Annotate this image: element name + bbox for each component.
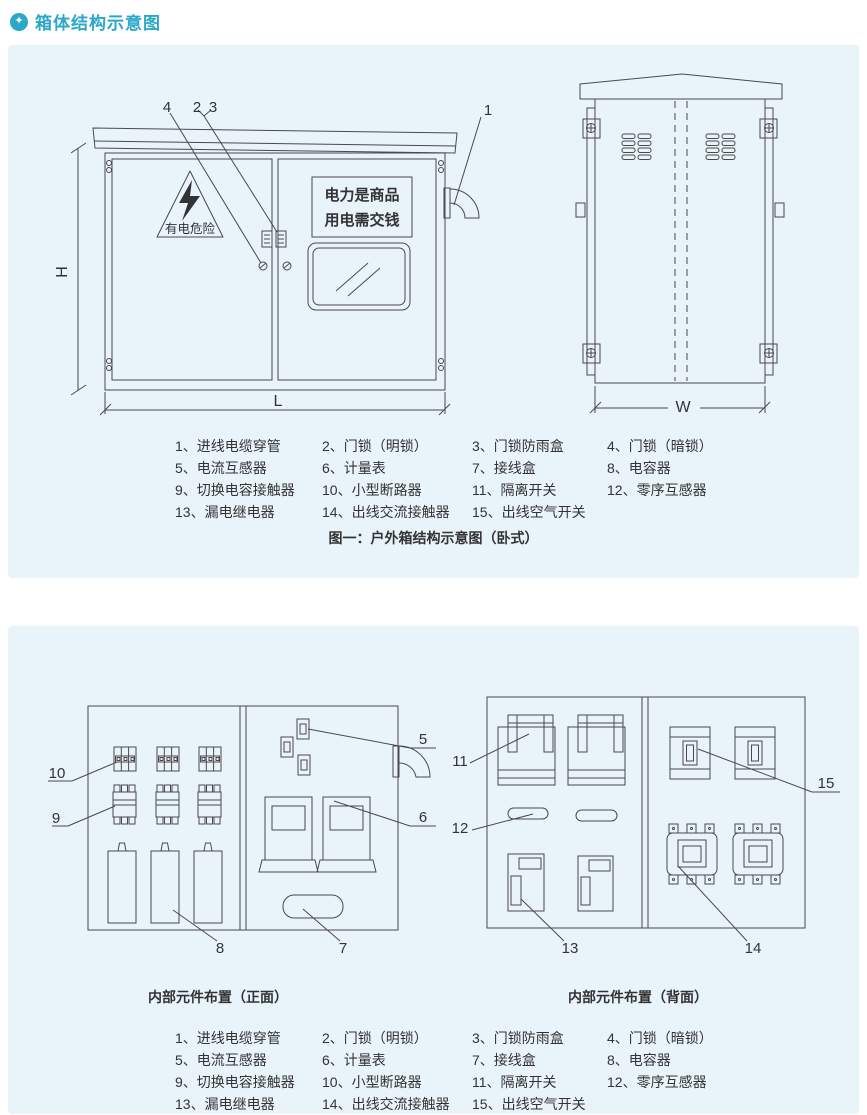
cable-entry-spout-internal [393, 746, 430, 777]
cabinet-roof [93, 128, 457, 153]
legend-item: 14、出线交流接触器 [322, 502, 472, 522]
legend-item: 6、计量表 [322, 1050, 472, 1070]
meter-window [308, 243, 410, 310]
legend-item: 8、电容器 [607, 1050, 713, 1070]
capacitors [108, 843, 222, 923]
legend-item: 4、门锁（暗锁） [607, 436, 713, 456]
miniature-circuit-breakers [114, 747, 221, 771]
callout-4-label: 4 [163, 99, 171, 116]
side-rails [587, 108, 773, 375]
callout-2-label: 2 [193, 99, 201, 116]
outgoing-air-switches [670, 727, 775, 779]
outgoing-ac-contactors [667, 824, 783, 884]
cabinet-back-body [595, 99, 765, 383]
legend-item: 9、切换电容接触器 [175, 1072, 322, 1092]
dimension-w-label: W [675, 399, 691, 416]
vent-louvers-right [706, 134, 735, 160]
figure1-caption: 图一：户外箱结构示意图（卧式） [8, 528, 859, 548]
legend-item: 14、出线交流接触器 [322, 1094, 472, 1114]
zero-sequence-slots [508, 808, 617, 821]
warning-text: 有电危险 [165, 221, 216, 236]
figure1-panel: 4 2 3 1 H L 有电危险 电力是商品 用电需交钱 [8, 45, 859, 578]
internal-front-leader-lines [48, 729, 436, 941]
legend-item: 6、计量表 [322, 458, 472, 478]
legend-item: 10、小型断路器 [322, 1072, 472, 1092]
callout-12-label: 12 [452, 820, 469, 837]
door-lock-assembly [259, 231, 291, 270]
legend-item: 3、门锁防雨盒 [472, 436, 607, 456]
legend-item: 13、漏电继电器 [175, 1094, 322, 1114]
legend-item: 7、接线盒 [472, 458, 607, 478]
dimension-l-label: L [274, 393, 283, 410]
page-title-text: 箱体结构示意图 [35, 9, 161, 34]
internal-back-caption: 内部元件布置（背面） [488, 987, 788, 1007]
back-view-drawing: W [565, 65, 800, 420]
current-transformers [281, 719, 310, 775]
callout-5-label: 5 [419, 731, 427, 748]
internal-back-box [487, 697, 805, 928]
legend-item: 11、隔离开关 [472, 480, 607, 500]
corner-bolt-brackets [583, 119, 777, 363]
page-title: ✦ 箱体结构示意图 [10, 9, 161, 34]
callout-8-label: 8 [216, 940, 224, 957]
legend-item: 12、零序互感器 [607, 480, 713, 500]
legend-item: 3、门锁防雨盒 [472, 1028, 607, 1048]
legend-item: 11、隔离开关 [472, 1072, 607, 1092]
callout-13-label: 13 [562, 940, 579, 957]
side-latches [576, 203, 784, 217]
energy-meters [259, 797, 376, 872]
sign-line1: 电力是商品 [324, 186, 399, 204]
front-view-drawing: 4 2 3 1 H L 有电危险 电力是商品 用电需交钱 [55, 85, 500, 425]
legend-item: 8、电容器 [607, 458, 713, 478]
callout-6-label: 6 [419, 809, 427, 826]
cable-entry-spout [444, 188, 479, 218]
legend-item: 9、切换电容接触器 [175, 480, 322, 500]
peaked-roof [580, 74, 782, 99]
callout-15-label: 15 [818, 775, 835, 792]
legend-item: 12、零序互感器 [607, 1072, 713, 1092]
legend-item: 15、出线空气开关 [472, 502, 607, 522]
legend-item: 2、门锁（明锁） [322, 1028, 472, 1048]
dimension-h-label: H [54, 266, 71, 278]
callout-14-label: 14 [745, 940, 762, 957]
callout-10-label: 10 [49, 765, 66, 782]
legend-bottom: 1、进线电缆穿管 2、门锁（明锁） 3、门锁防雨盒 4、门锁（暗锁） 5、电流互… [175, 1027, 713, 1115]
legend-item: 1、进线电缆穿管 [175, 436, 322, 456]
internal-back-leader-lines [470, 734, 840, 941]
callout-9-label: 9 [52, 810, 60, 827]
internal-front-drawing: 10 9 8 7 5 6 [45, 690, 445, 960]
callout-11-label: 11 [452, 753, 468, 770]
isolating-switches [498, 715, 625, 785]
legend-item: 2、门锁（明锁） [322, 436, 472, 456]
sign-line2: 用电需交钱 [324, 211, 399, 229]
legend-item: 5、电流互感器 [175, 458, 322, 478]
brilliance-star-icon: ✦ [10, 13, 28, 31]
internal-back-drawing: 11 12 13 14 15 [450, 690, 860, 960]
internal-front-caption: 内部元件布置（正面） [68, 987, 368, 1007]
legend-item: 13、漏电继电器 [175, 502, 322, 522]
junction-box [283, 895, 343, 918]
legend-item: 10、小型断路器 [322, 480, 472, 500]
leakage-relays [508, 854, 613, 911]
legend-item: 5、电流互感器 [175, 1050, 322, 1070]
legend-top: 1、进线电缆穿管 2、门锁（明锁） 3、门锁防雨盒 4、门锁（暗锁） 5、电流互… [175, 435, 713, 523]
callout-1-label: 1 [484, 102, 492, 119]
legend-item: 7、接线盒 [472, 1050, 607, 1070]
legend-item: 1、进线电缆穿管 [175, 1028, 322, 1048]
callout-7-label: 7 [339, 940, 347, 957]
figure2-panel: 10 9 8 7 5 6 [8, 626, 859, 1114]
callout-3-label: 3 [209, 99, 217, 116]
legend-item: 15、出线空气开关 [472, 1094, 607, 1114]
vent-louvers-left [622, 134, 651, 160]
dimension-h [71, 143, 86, 395]
legend-item: 4、门锁（暗锁） [607, 1028, 713, 1048]
capacitor-contactors [113, 785, 221, 824]
